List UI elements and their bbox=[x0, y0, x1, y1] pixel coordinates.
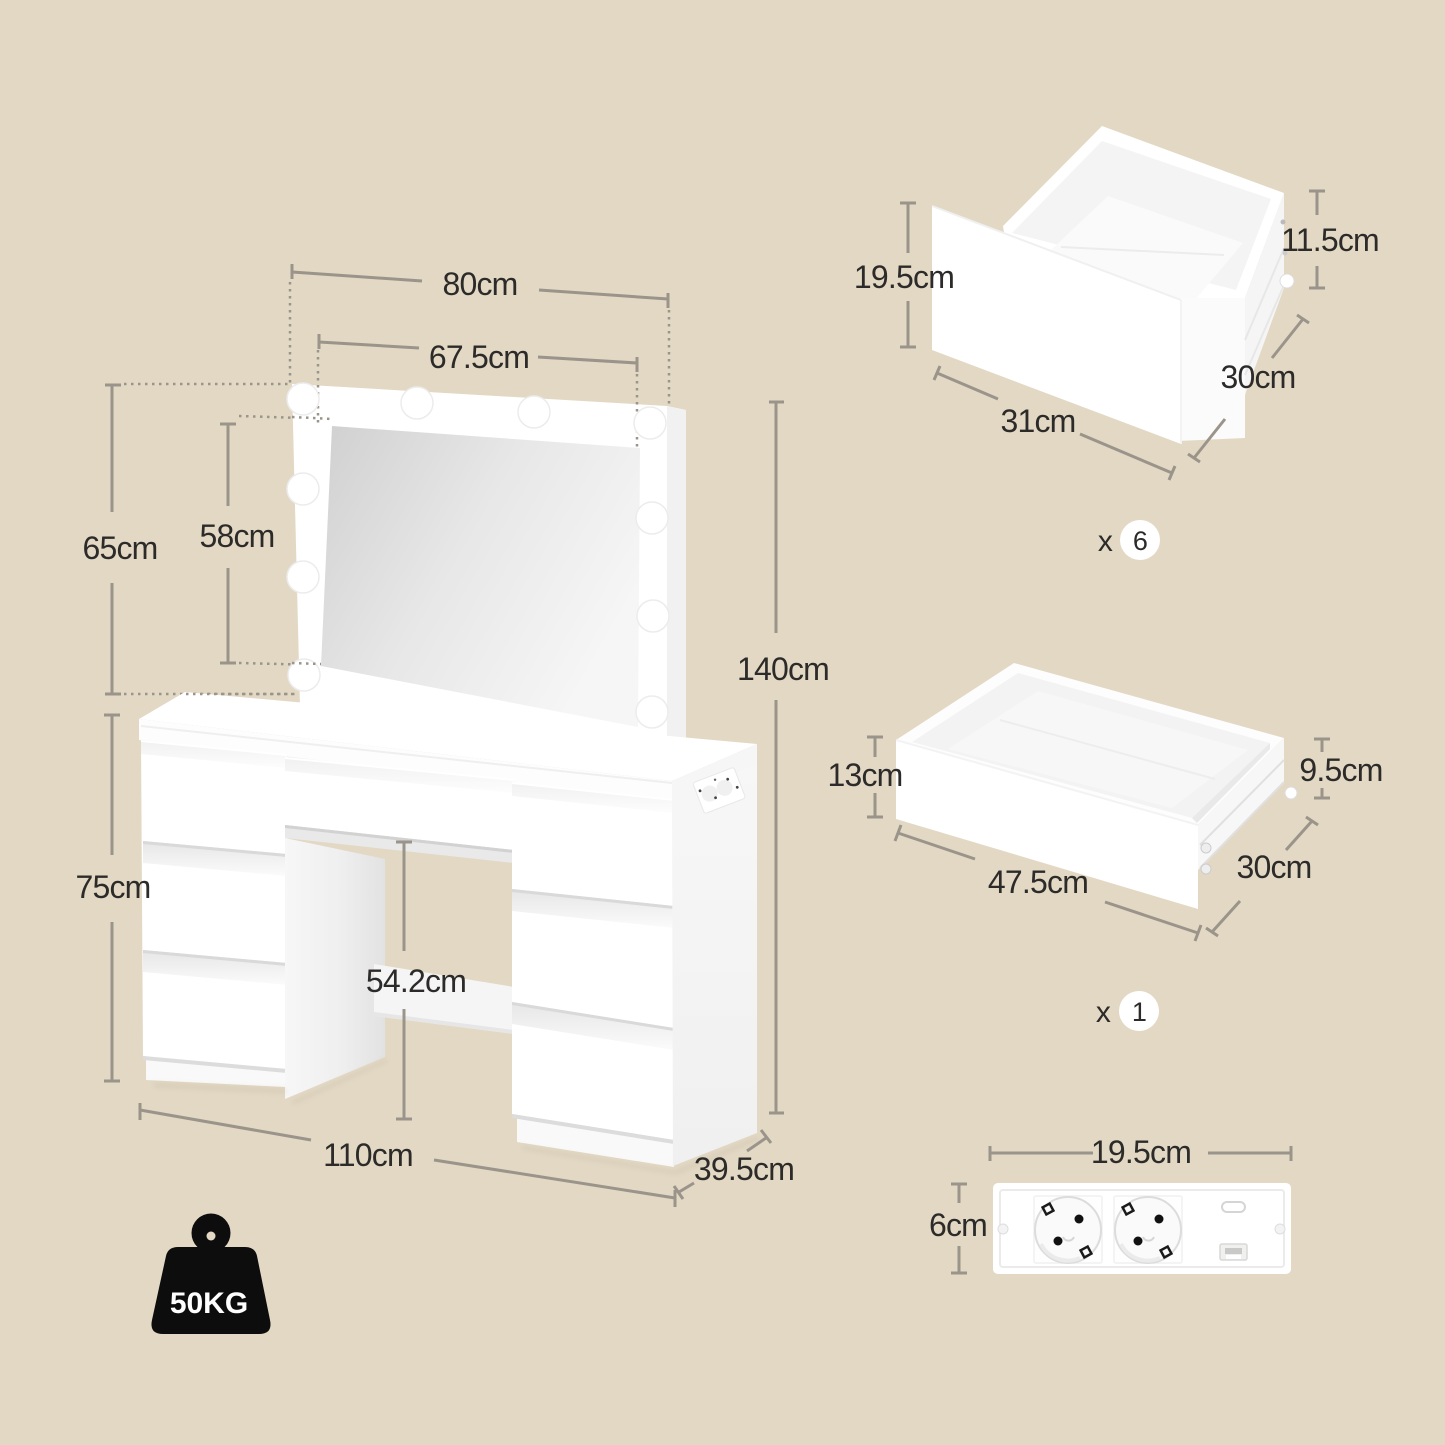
svg-text:6cm: 6cm bbox=[929, 1207, 987, 1243]
svg-text:39.5cm: 39.5cm bbox=[694, 1151, 794, 1187]
svg-text:30cm: 30cm bbox=[1236, 849, 1311, 885]
svg-text:1: 1 bbox=[1132, 997, 1146, 1027]
svg-text:13cm: 13cm bbox=[827, 757, 902, 793]
svg-text:58cm: 58cm bbox=[199, 518, 274, 554]
svg-text:67.5cm: 67.5cm bbox=[429, 339, 529, 375]
svg-text:19.5cm: 19.5cm bbox=[854, 259, 954, 295]
svg-text:9.5cm: 9.5cm bbox=[1299, 752, 1382, 788]
svg-text:50KG: 50KG bbox=[170, 1287, 248, 1320]
svg-text:11.5cm: 11.5cm bbox=[1281, 222, 1379, 258]
svg-text:31cm: 31cm bbox=[1000, 403, 1075, 439]
svg-text:54.2cm: 54.2cm bbox=[366, 963, 466, 999]
svg-text:80cm: 80cm bbox=[442, 266, 517, 302]
svg-text:65cm: 65cm bbox=[82, 530, 157, 566]
svg-text:110cm: 110cm bbox=[323, 1137, 413, 1173]
svg-text:47.5cm: 47.5cm bbox=[988, 864, 1088, 900]
svg-text:30cm: 30cm bbox=[1220, 359, 1295, 395]
svg-text:x: x bbox=[1098, 525, 1113, 558]
svg-text:75cm: 75cm bbox=[75, 869, 150, 905]
svg-text:140cm: 140cm bbox=[737, 651, 829, 687]
svg-text:x: x bbox=[1096, 996, 1111, 1029]
svg-text:19.5cm: 19.5cm bbox=[1091, 1134, 1191, 1170]
svg-text:6: 6 bbox=[1133, 526, 1147, 556]
